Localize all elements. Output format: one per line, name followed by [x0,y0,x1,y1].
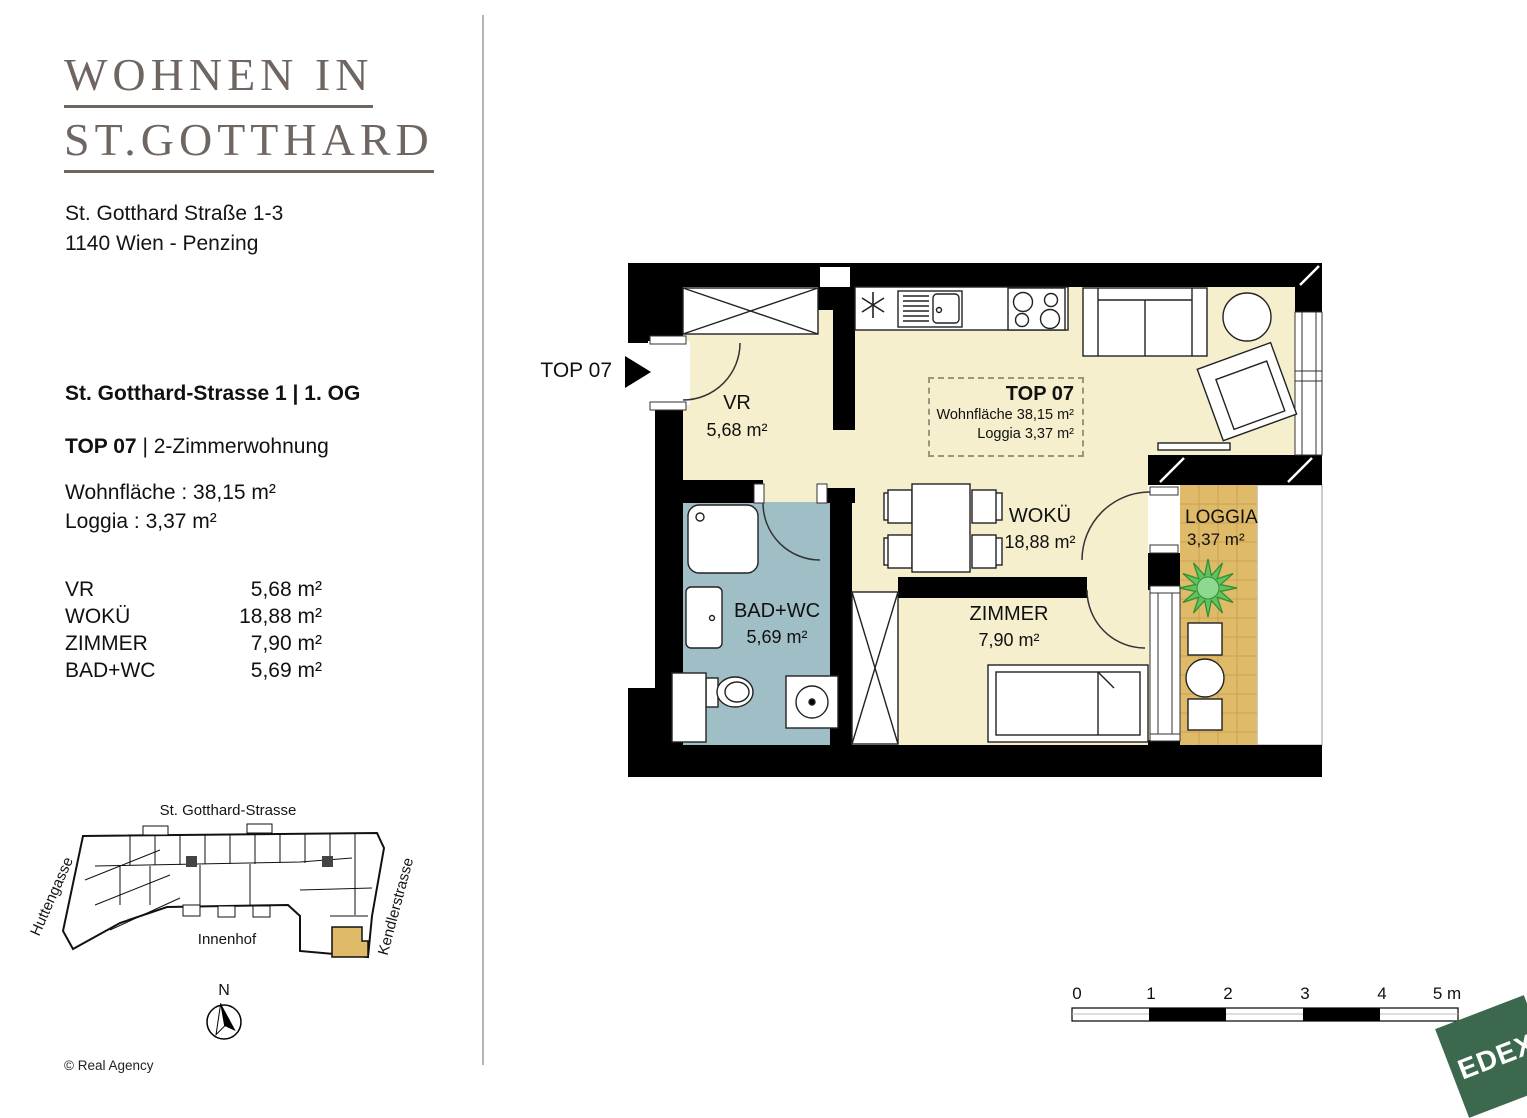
room-name: ZIMMER [65,630,148,657]
brand-title: WOHNEN IN ST.GOTTHARD [64,52,434,182]
room-area-vr: 5,68 m² [700,420,774,441]
room-label-vr: VR [700,392,774,415]
loggia-furniture [1186,623,1224,730]
north-label: N [210,982,238,1000]
unit-info-box: TOP 07 Wohnfläche 38,15 m² Loggia 3,37 m… [928,377,1084,457]
bath-sink [686,587,722,648]
courtyard-label: Innenhof [167,931,287,948]
loggia-area-line: Loggia : 3,37 m² [65,507,276,536]
scale-label-2: 2 [1198,984,1258,1004]
street-label-top: St. Gotthard-Strasse [128,802,328,819]
area-summary: Wohnfläche : 38,15 m² Loggia : 3,37 m² [65,478,276,536]
bed [988,665,1148,742]
scale-bar [1072,1008,1458,1021]
sofa [1083,288,1207,356]
wardrobe-vr [683,288,818,334]
room-area: 5,69 m² [251,657,322,684]
unit-line: TOP 07 | 2-Zimmerwohnung [65,435,329,459]
brand-title-line2: ST.GOTTHARD [64,117,434,173]
room-label-loggia: LOGGIA [1185,507,1258,529]
room-area: 7,90 m² [251,630,322,657]
wardrobe-zimmer [852,592,898,744]
unit-type: | 2-Zimmerwohnung [142,435,328,458]
room-area-bad: 5,69 m² [727,627,827,648]
side-table [1223,293,1271,341]
window-zimmer-loggia [1150,590,1180,740]
stove-icon [1008,288,1065,330]
room-label-woku: WOKÜ [990,505,1090,528]
scale-label-1: 1 [1121,984,1181,1004]
room-name: VR [65,576,94,603]
scale-label-3: 3 [1275,984,1335,1004]
window-living-east [1295,312,1322,455]
highlighted-unit [332,927,368,957]
kitchen-counter [855,287,1068,330]
room-area-table: VR 5,68 m² WOKÜ 18,88 m² ZIMMER 7,90 m² … [65,576,322,684]
address-line2: 1140 Wien - Penzing [65,229,283,259]
table-row: WOKÜ 18,88 m² [65,603,322,630]
project-address: St. Gotthard Straße 1-3 1140 Wien - Penz… [65,199,283,259]
scale-label-4: 4 [1352,984,1412,1004]
edex-logo-text: EDEX [1453,1027,1527,1086]
sink-icon [898,291,962,327]
toilet [706,677,753,707]
wall-niche [820,267,850,287]
room-area-loggia: 3,37 m² [1187,530,1245,550]
living-area-line: Wohnfläche : 38,15 m² [65,478,276,507]
scale-label-5: 5 m [1417,984,1477,1004]
room-area: 18,88 m² [239,603,322,630]
room-label-bad: BAD+WC [727,600,827,623]
room-name: WOKÜ [65,603,130,630]
shower [688,505,758,573]
entry-arrow-icon [625,356,651,388]
neighbor-loggia-strip [1257,485,1322,745]
room-area-zimmer: 7,90 m² [959,630,1059,651]
location-line: St. Gotthard-Strasse 1 | 1. OG [65,382,360,406]
address-line1: St. Gotthard Straße 1-3 [65,199,283,229]
table-row: VR 5,68 m² [65,576,322,603]
room-area-woku: 18,88 m² [990,532,1090,553]
shelf [1158,443,1230,450]
entrance-opening [648,341,690,405]
room-label-zimmer: ZIMMER [959,603,1059,626]
washing-machine [786,676,838,728]
panel-divider [482,15,484,1065]
info-box-title: TOP 07 [930,382,1074,406]
room-area: 5,68 m² [251,576,322,603]
room-name: BAD+WC [65,657,155,684]
dining-table [912,484,970,572]
scale-label-0: 0 [1047,984,1107,1004]
table-row: BAD+WC 5,69 m² [65,657,322,684]
brand-title-line1: WOHNEN IN [64,52,373,108]
entry-label: TOP 07 [528,359,612,383]
north-arrow-icon [207,1002,241,1039]
table-row: ZIMMER 7,90 m² [65,630,322,657]
shaft-niche [672,673,706,742]
copyright: © Real Agency [64,1058,154,1073]
unit-name: TOP 07 [65,435,137,458]
info-box-loggia: Loggia 3,37 m² [930,425,1074,444]
info-box-living: Wohnfläche 38,15 m² [930,406,1074,425]
